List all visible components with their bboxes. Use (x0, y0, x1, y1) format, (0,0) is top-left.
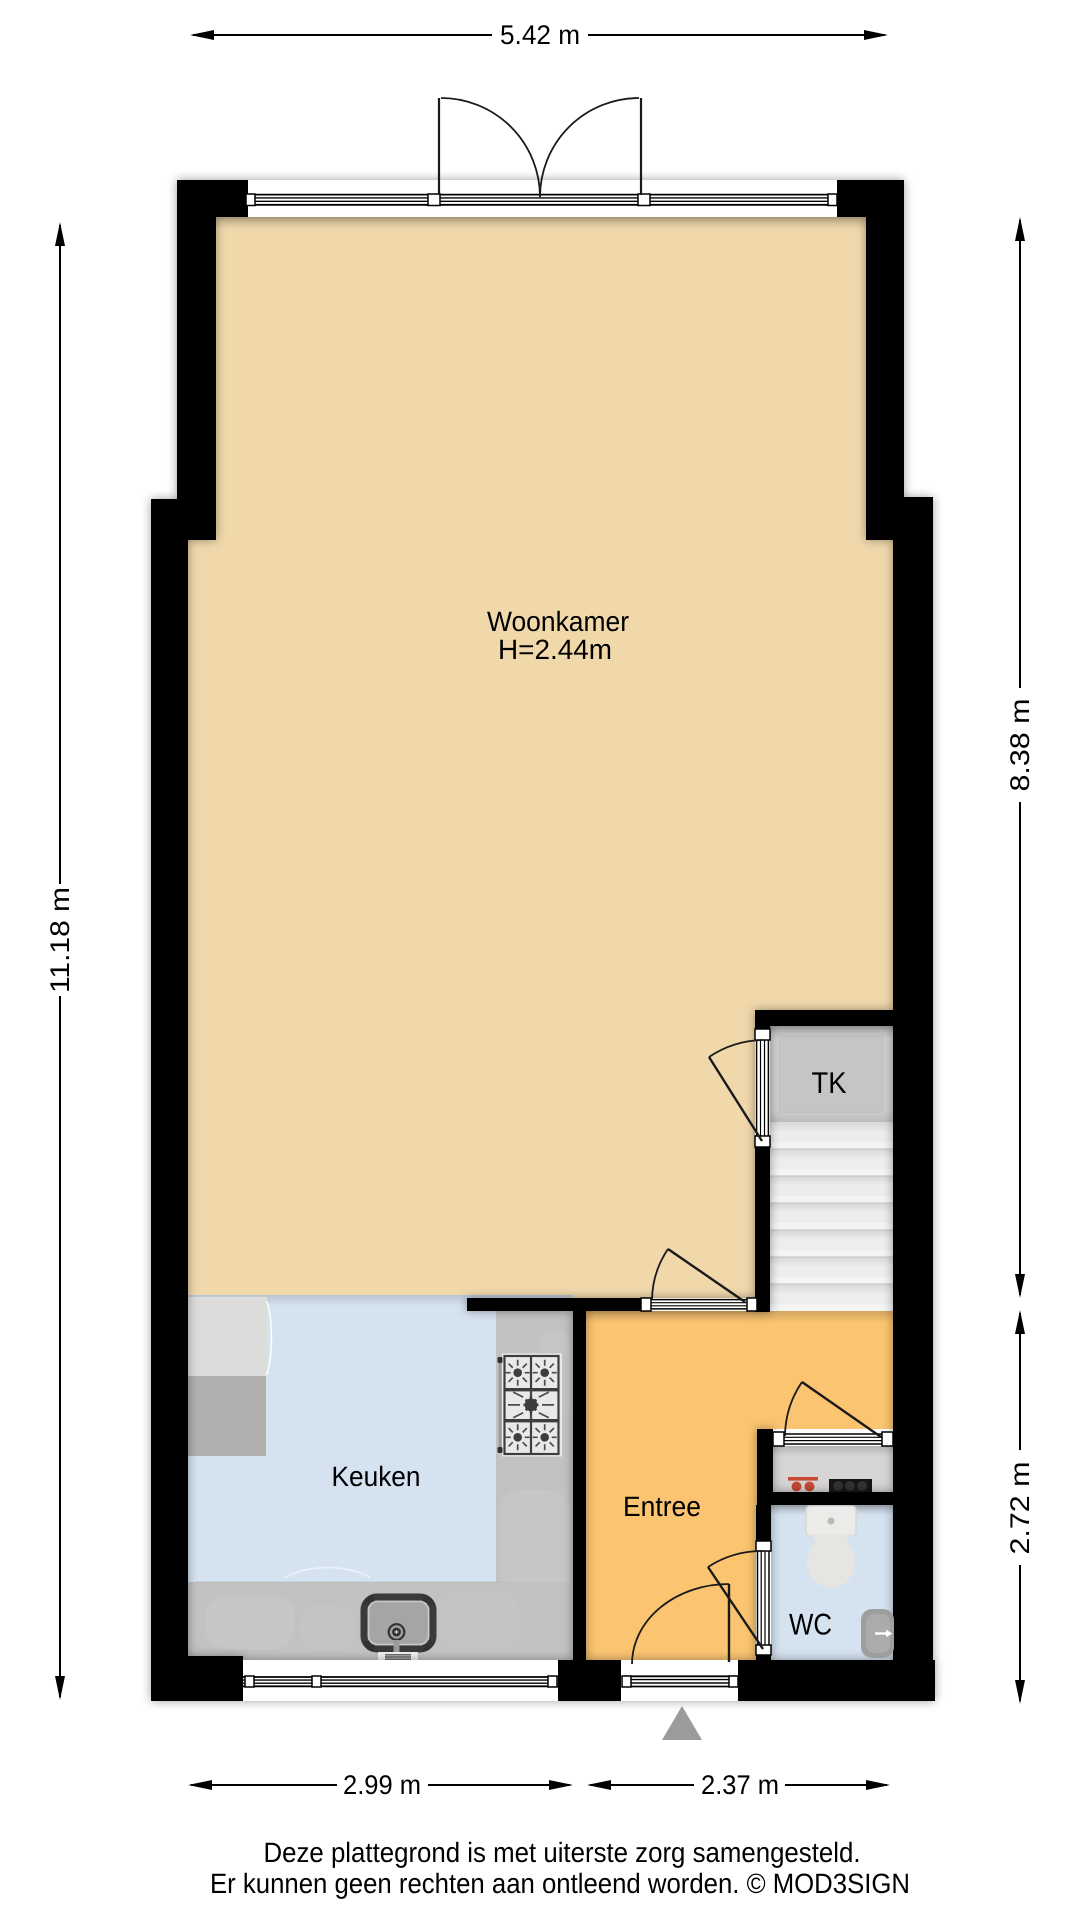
svg-text:5.42 m: 5.42 m (500, 20, 580, 50)
svg-text:Deze plattegrond is met uiters: Deze plattegrond is met uiterste zorg sa… (264, 1837, 861, 1868)
svg-text:2.99 m: 2.99 m (343, 1770, 421, 1800)
svg-text:TK: TK (812, 1067, 847, 1100)
svg-text:2.72 m: 2.72 m (1005, 1462, 1035, 1555)
svg-text:11.18 m: 11.18 m (45, 887, 75, 993)
svg-text:2.37 m: 2.37 m (701, 1770, 779, 1800)
svg-text:Er kunnen geen rechten aan ont: Er kunnen geen rechten aan ontleend word… (210, 1868, 910, 1899)
svg-text:Entree: Entree (623, 1491, 701, 1522)
svg-text:H=2.44m: H=2.44m (498, 634, 612, 665)
svg-text:8.38 m: 8.38 m (1005, 699, 1035, 792)
svg-text:WC: WC (789, 1609, 832, 1642)
svg-text:Woonkamer: Woonkamer (487, 606, 629, 637)
svg-text:Keuken: Keuken (332, 1461, 421, 1492)
